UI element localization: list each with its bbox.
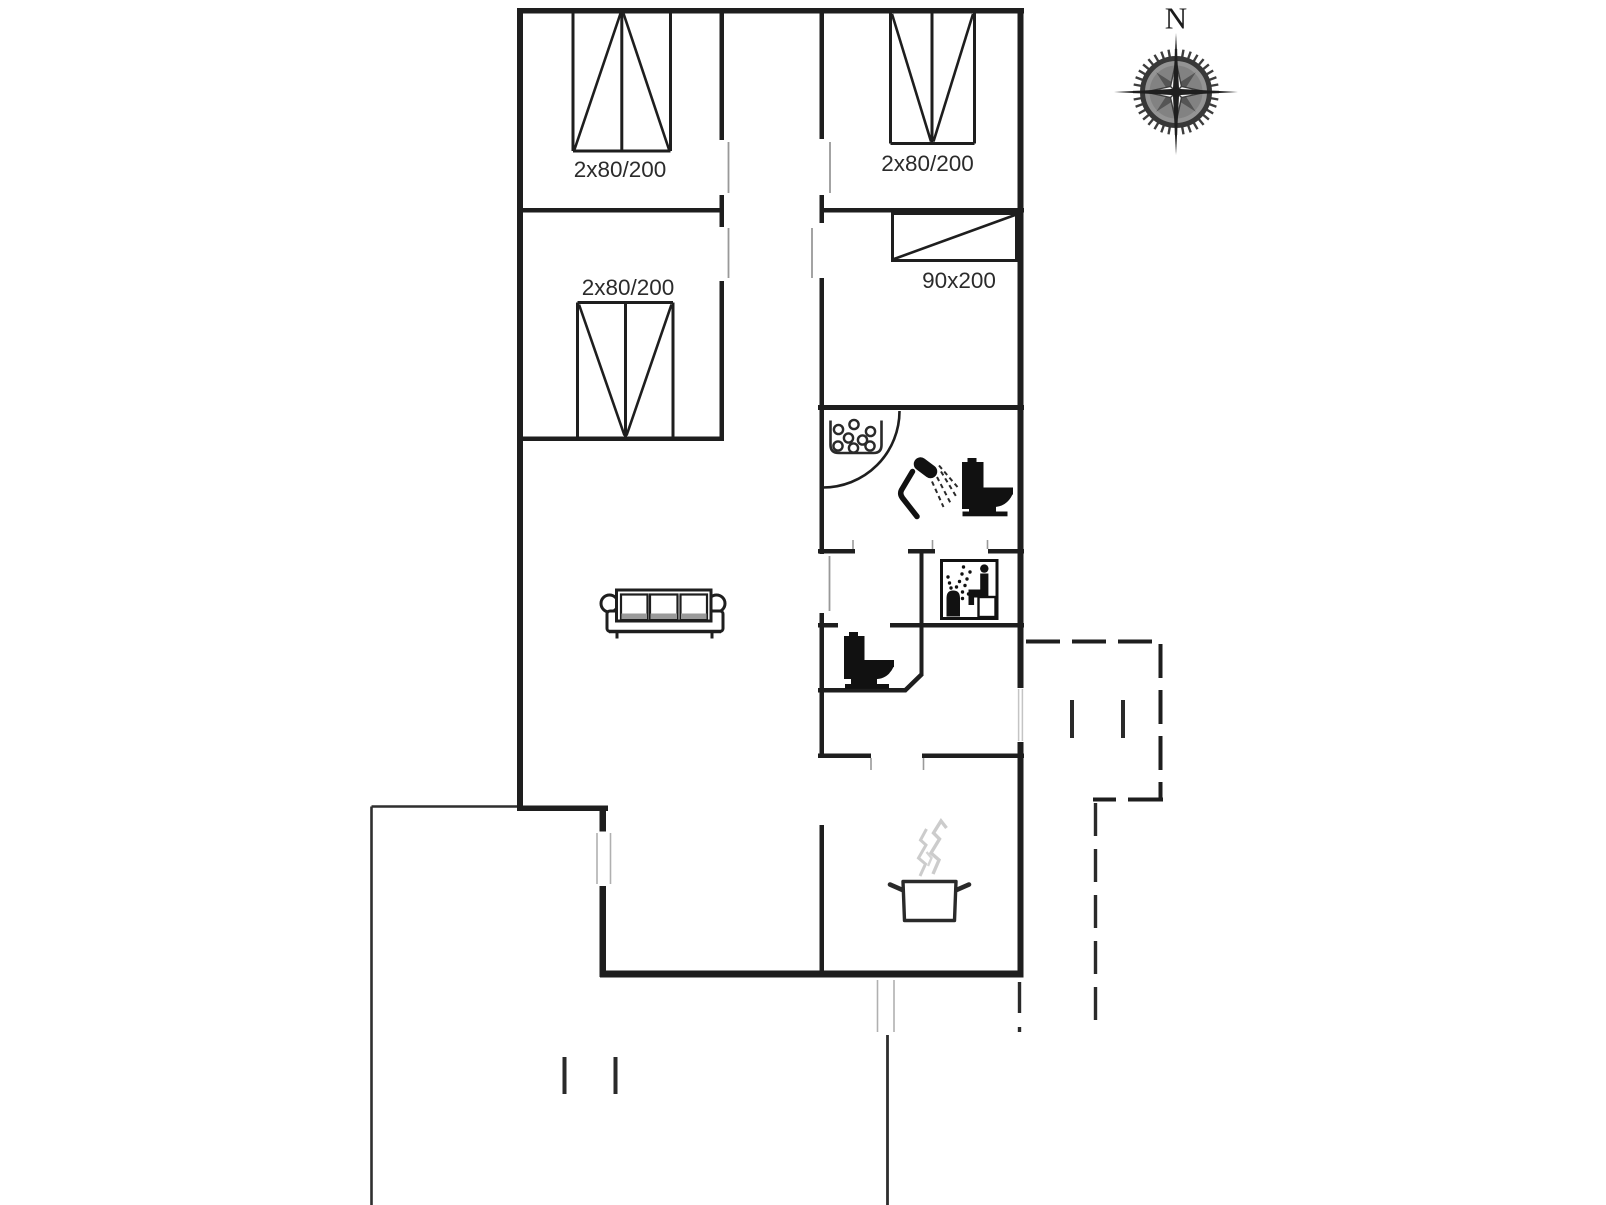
svg-text:N: N [1165, 1, 1187, 36]
svg-text:2x80/200: 2x80/200 [574, 157, 667, 182]
svg-text:2x80/200: 2x80/200 [881, 151, 974, 176]
svg-text:90x200: 90x200 [922, 268, 996, 293]
svg-text:2x80/200: 2x80/200 [582, 275, 675, 300]
